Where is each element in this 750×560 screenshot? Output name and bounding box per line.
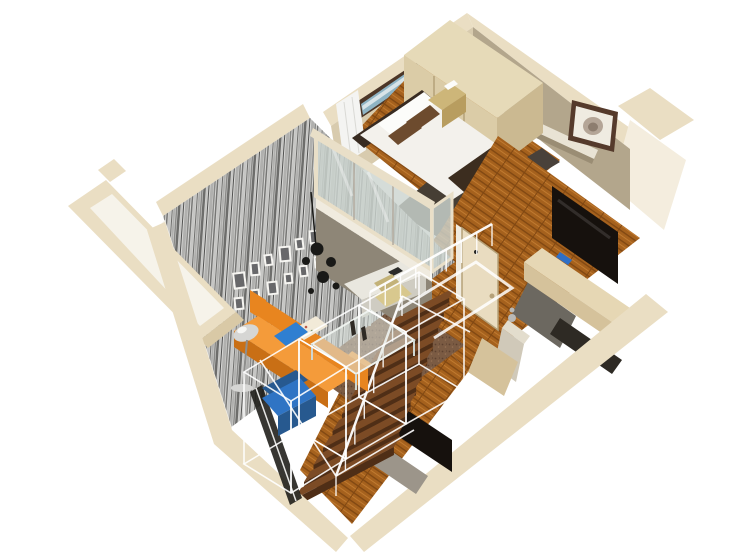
gallery-frame-art: [234, 274, 245, 288]
sculpture: [508, 314, 516, 322]
pendant-ball: [302, 257, 310, 265]
gallery-frame-art: [297, 240, 303, 249]
pillow-dot: [305, 326, 308, 329]
gallery-frame-art: [301, 267, 307, 275]
floor-lamp-base: [231, 384, 253, 392]
pendant-ball: [317, 271, 329, 283]
pendant-ball: [333, 283, 340, 290]
gallery-frame-art: [286, 275, 292, 282]
floorplan-svg: [0, 0, 750, 560]
pendant-ball: [308, 288, 314, 294]
balcony-bay-notch: [98, 159, 126, 182]
floorplan-render: [0, 0, 750, 560]
flower-bloom-core: [588, 123, 598, 132]
pendant-ball: [311, 243, 324, 256]
gallery-frame-art: [266, 256, 272, 265]
gallery-frame-art: [280, 248, 289, 261]
door-handle: [490, 294, 495, 299]
gallery-frame-art: [268, 283, 276, 294]
gallery-frame-art: [236, 299, 243, 309]
gallery-frame-art: [252, 264, 259, 274]
sculpture-head: [510, 308, 515, 313]
pendant-ball: [326, 257, 336, 267]
